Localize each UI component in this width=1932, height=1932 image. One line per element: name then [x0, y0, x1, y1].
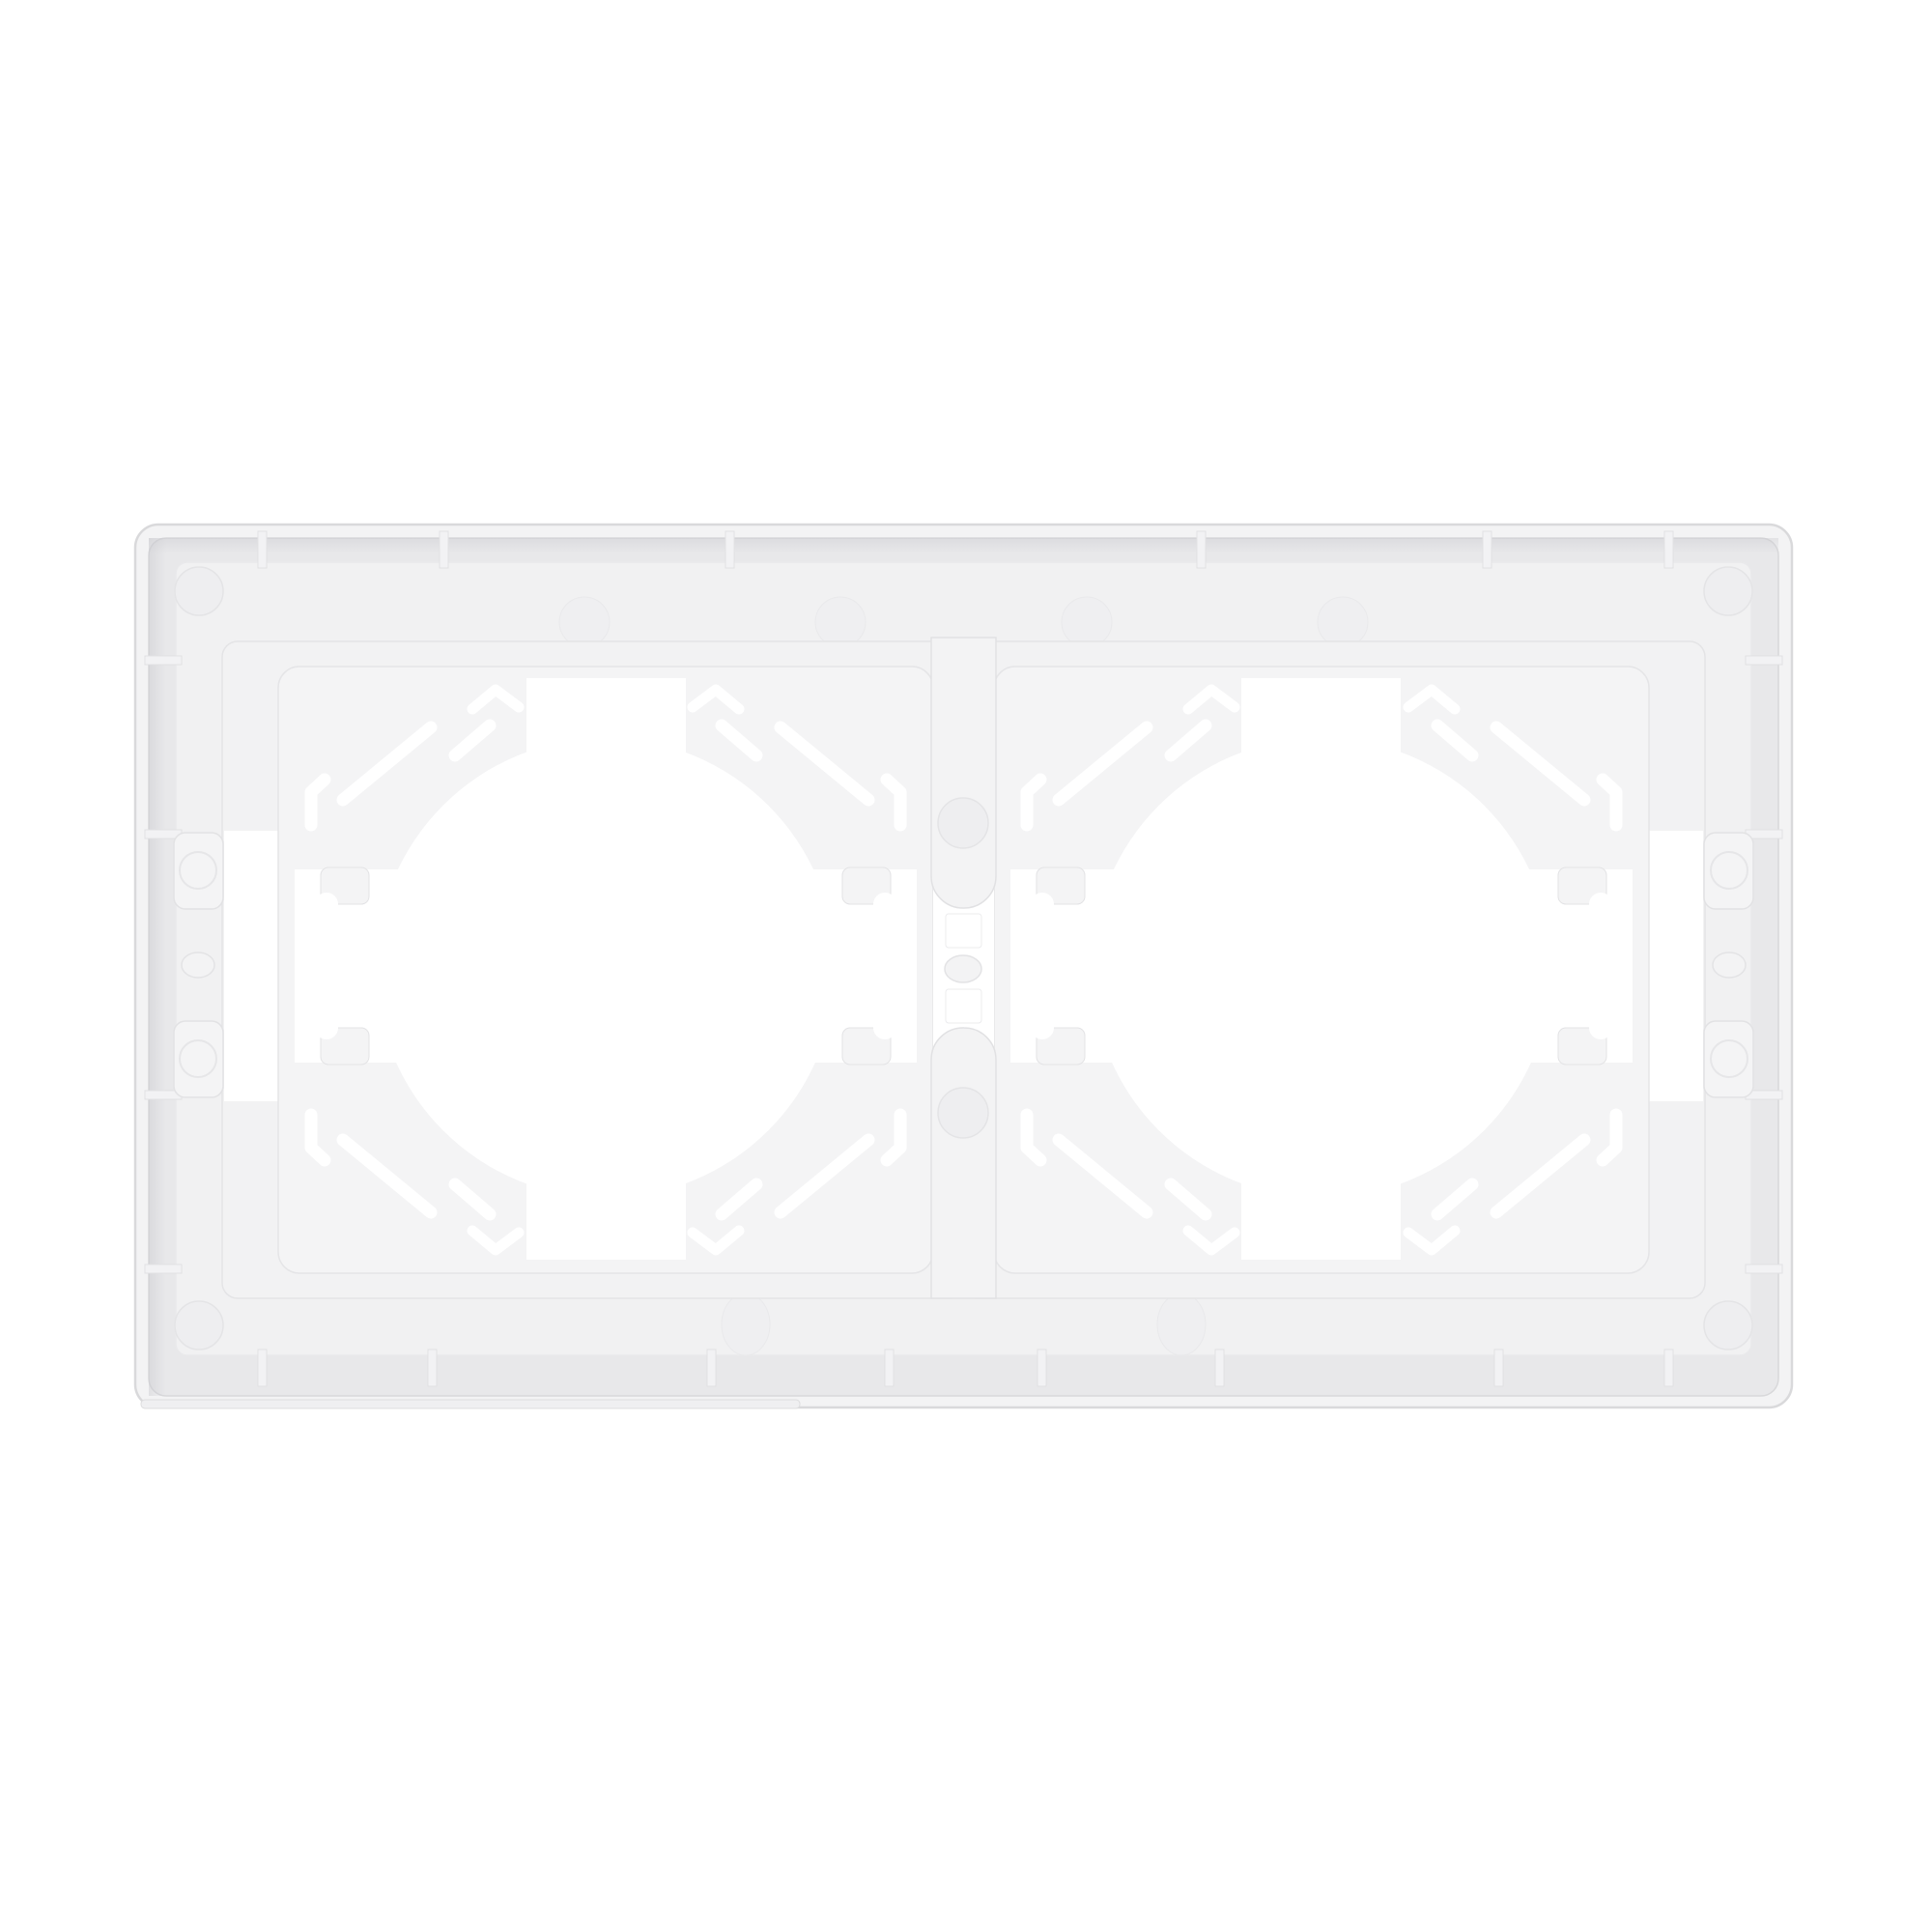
latch-slot-cutout: [1649, 831, 1703, 1101]
ejector-mark: [815, 597, 866, 647]
channel-shading-top: [149, 538, 1778, 554]
latch-slot-cutout: [224, 831, 278, 1101]
corner-boss: [175, 567, 223, 615]
corner-boss: [1704, 1301, 1752, 1350]
corner-boss: [1704, 567, 1752, 615]
snap-window: [946, 914, 981, 948]
ejector-mark: [559, 597, 610, 647]
latch-pin: [1713, 952, 1746, 978]
mounting-plate-right: [994, 667, 1649, 1273]
latch-pin: [182, 952, 214, 978]
corner-boss: [175, 1301, 223, 1350]
snap-window: [946, 989, 981, 1023]
bottom-lip-step: [141, 1400, 800, 1408]
ejector-mark: [1318, 597, 1368, 647]
product-photo: [0, 0, 1932, 1932]
bridge-tongue-top: [931, 638, 996, 908]
side-latch-right: [1649, 831, 1753, 1101]
bridge-boss: [938, 1088, 988, 1138]
mounting-plate-left: [278, 667, 933, 1273]
bridge-tongue-bottom: [931, 1028, 996, 1298]
ejector-mark: [722, 1293, 770, 1355]
side-latch-left: [174, 831, 278, 1101]
bridge-pin: [945, 955, 981, 982]
ejector-mark: [1157, 1293, 1206, 1355]
bridge-boss: [938, 798, 988, 848]
ejector-mark: [1062, 597, 1112, 647]
socket-frame-rear-view: [0, 0, 1932, 1932]
center-bridge: [931, 638, 996, 1298]
